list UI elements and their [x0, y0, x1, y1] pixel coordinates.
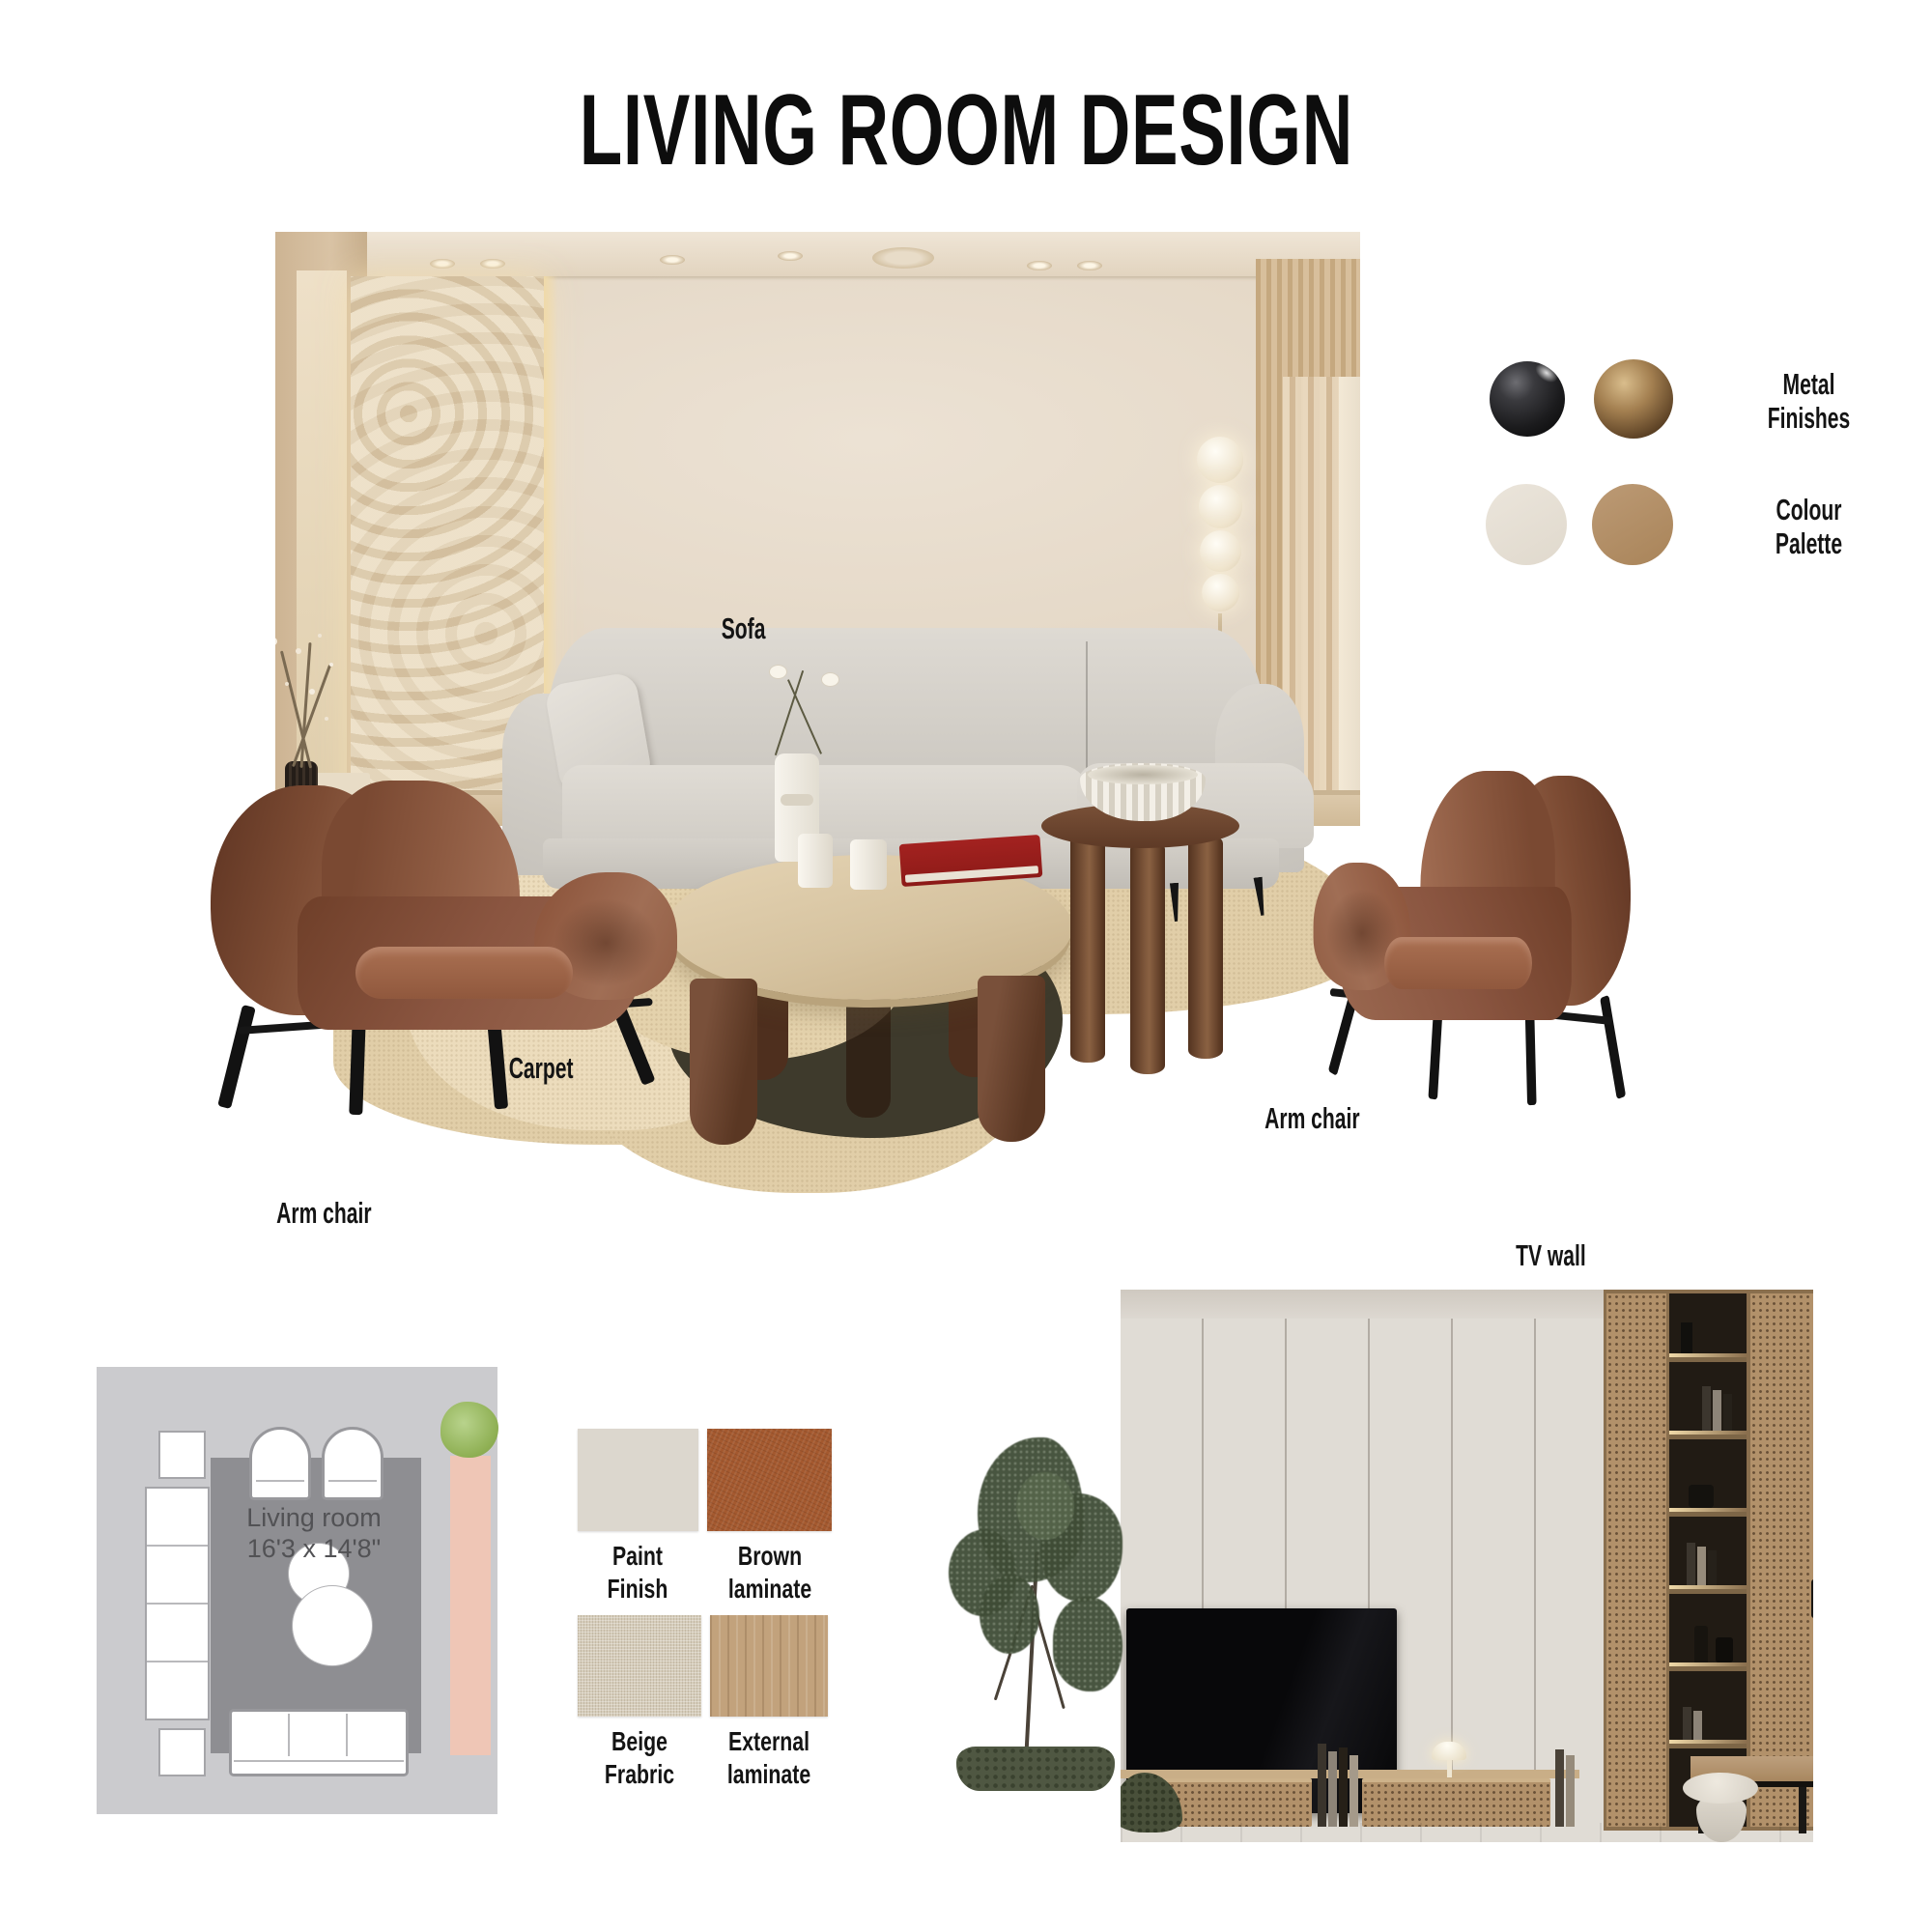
plan-sofa-seam [346, 1714, 348, 1756]
paint-finish-line1: Paint [586, 1540, 689, 1573]
coffee-table-leg [978, 976, 1045, 1142]
shelf-bottle [1681, 1322, 1692, 1353]
plan-sofa-backrest [234, 1760, 404, 1762]
shelf-book [1693, 1711, 1702, 1740]
shelf-board [1669, 1357, 1747, 1362]
shelf-object [1716, 1637, 1733, 1662]
plan-sofa [229, 1709, 409, 1776]
shelf-book [1702, 1386, 1711, 1431]
arm-chair-right-label: Arm chair [1235, 1101, 1389, 1135]
colour-palette-line2: Palette [1754, 526, 1862, 560]
external-laminate-line1: External [718, 1725, 820, 1758]
rattan-cabinet-door [1606, 1293, 1666, 1827]
shelf-figurine [1689, 1485, 1714, 1508]
material-swatch-paint-finish [578, 1429, 698, 1531]
floor-lamp-sphere [1199, 485, 1242, 528]
plan-shelf-divider [147, 1661, 208, 1662]
books [1350, 1755, 1358, 1827]
sheer-curtain [1339, 377, 1360, 826]
armchair-leg [1428, 1007, 1442, 1100]
shelf-book [1697, 1547, 1706, 1585]
material-swatch-external-laminate [710, 1615, 828, 1717]
paint-finish-line2: Finish [586, 1573, 689, 1605]
shelf-book [1687, 1543, 1695, 1585]
tv-wall-label: TV wall [1483, 1238, 1618, 1272]
spotlight [430, 259, 455, 269]
shelf-board [1669, 1512, 1747, 1517]
tree-foliage [1053, 1597, 1122, 1691]
table-lamp [1432, 1742, 1466, 1760]
metal-finishes-line1: Metal [1754, 367, 1862, 401]
side-table-leg [1188, 835, 1223, 1059]
armchair-right [1309, 771, 1631, 1254]
arm-chair-left-label: Arm chair [246, 1196, 401, 1230]
external-laminate-line2: laminate [718, 1758, 820, 1791]
plan-sofa-seam [288, 1714, 290, 1756]
plan-balcony [450, 1456, 491, 1755]
stool-seat [1683, 1773, 1758, 1804]
flower [769, 665, 787, 679]
tree-foliage [1016, 1472, 1074, 1540]
books [1566, 1755, 1575, 1827]
media-console [1362, 1778, 1550, 1827]
spotlight [660, 255, 685, 265]
side-table [1041, 763, 1239, 1077]
tree-planter [956, 1747, 1115, 1791]
armchair-leg [1600, 995, 1626, 1099]
shelf-recess [1669, 1293, 1747, 1827]
flower [821, 672, 839, 687]
armchair-left [211, 781, 684, 1264]
tv-wall-label-text: TV wall [1516, 1238, 1586, 1272]
armchair-cushion [1384, 937, 1532, 989]
books [1339, 1747, 1348, 1827]
sofa-label: Sofa [676, 611, 811, 645]
shelf-board [1669, 1435, 1747, 1439]
spotlight [778, 251, 803, 261]
coffee-table-leg [690, 979, 757, 1145]
metal-finish-bronze-sphere [1594, 359, 1673, 439]
desk-vase [1811, 1579, 1813, 1618]
plan-shelf-divider [147, 1603, 208, 1605]
sofa-label-text: Sofa [722, 611, 766, 645]
books [1555, 1749, 1564, 1827]
shelf-board [1669, 1589, 1747, 1594]
spotlight [480, 259, 505, 269]
side-table-leg [1130, 840, 1165, 1074]
armchair-leg [217, 1005, 256, 1109]
plan-cabinet [158, 1728, 206, 1776]
shelf-book [1723, 1394, 1732, 1431]
beige-fabric-label: Beige Frabric [572, 1725, 707, 1791]
carpet-label: Carpet [464, 1051, 618, 1085]
metal-finishes-line2: Finishes [1754, 401, 1862, 435]
beige-fabric-line1: Beige [588, 1725, 691, 1758]
rattan-cabinet-door [1750, 1293, 1813, 1827]
material-swatch-brown-laminate [707, 1429, 832, 1531]
cup [850, 839, 887, 890]
shelf-book [1713, 1390, 1721, 1431]
brown-laminate-label: Brown laminate [702, 1540, 838, 1605]
plan-armchair [322, 1427, 384, 1500]
table-lamp-stem [1447, 1760, 1452, 1777]
mood-board: { "title": "LIVING ROOM DESIGN", "annota… [0, 0, 1932, 1932]
tv-wall-photo [1121, 1290, 1813, 1842]
shelf-book [1708, 1550, 1717, 1585]
shelf-vase [1694, 1626, 1708, 1662]
plan-cabinet [158, 1431, 206, 1479]
shelf-book [1683, 1707, 1691, 1740]
page-title: LIVING ROOM DESIGN [0, 73, 1932, 188]
metal-finish-black-sphere [1490, 361, 1565, 437]
colour-palette-camel-circle [1592, 484, 1673, 565]
colour-palette-line1: Colour [1754, 493, 1862, 526]
cup [798, 834, 833, 888]
metal-finishes-label: Metal Finishes [1729, 367, 1889, 435]
colour-palette-label: Colour Palette [1729, 493, 1889, 560]
arm-chair-left-label-text: Arm chair [276, 1196, 371, 1230]
external-laminate-label: External laminate [701, 1725, 837, 1791]
plan-coffee-table [292, 1585, 373, 1666]
photo-ceiling [275, 232, 1360, 276]
side-table-leg [1070, 833, 1105, 1063]
floor-lamp-sphere [1200, 530, 1241, 572]
paint-finish-label: Paint Finish [570, 1540, 705, 1605]
spotlight [1027, 261, 1052, 270]
material-swatch-beige-fabric [578, 1615, 701, 1717]
shelf-board [1669, 1666, 1747, 1671]
plan-room-name: Living room [188, 1502, 440, 1533]
page-title-text: LIVING ROOM DESIGN [579, 73, 1352, 188]
plan-room-label: Living room 16'3 x 14'8" [188, 1502, 440, 1564]
beige-fabric-line2: Frabric [588, 1758, 691, 1791]
floor-lamp-sphere [1202, 574, 1239, 611]
books [1318, 1744, 1326, 1827]
books [1328, 1751, 1337, 1827]
tree-foliage [980, 1575, 1039, 1654]
plan-room-dimensions: 16'3 x 14'8" [188, 1533, 440, 1564]
arm-chair-right-label-text: Arm chair [1264, 1101, 1359, 1135]
armchair-cushion [355, 947, 573, 999]
spotlight [1077, 261, 1102, 270]
brown-laminate-line2: laminate [719, 1573, 821, 1605]
ceiling-light [872, 247, 934, 269]
colour-palette-cream-circle [1486, 484, 1567, 565]
floor-plan: Living room 16'3 x 14'8" [97, 1367, 497, 1814]
floor-lamp-sphere [1197, 437, 1243, 483]
plan-armchair [249, 1427, 311, 1500]
shelf-board [1669, 1744, 1747, 1748]
decor-tree [949, 1437, 1122, 1797]
brown-laminate-line1: Brown [719, 1540, 821, 1573]
coffee-table [667, 855, 1072, 1154]
plan-tree [440, 1402, 498, 1458]
armchair-leg [1525, 1009, 1537, 1105]
armchair-leg [349, 1018, 365, 1115]
carpet-label-text: Carpet [509, 1051, 574, 1085]
